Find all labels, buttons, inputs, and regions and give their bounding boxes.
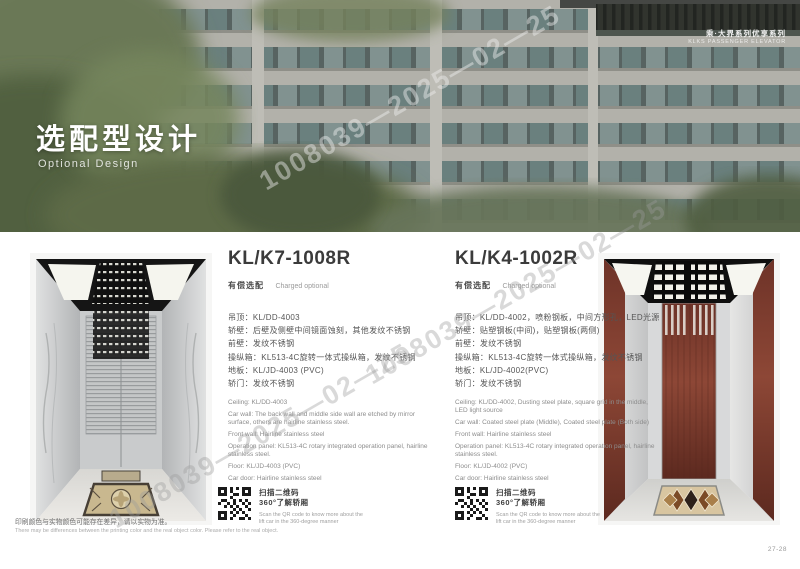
qr-section-k4: 扫描二维码 360°了解轿厢 Scan the QR code to know …	[455, 487, 604, 526]
specs-en: Ceiling: KL/DD-4003 Car wall: The back w…	[228, 399, 436, 483]
qr-caption-zh-2: 360°了解轿厢	[259, 498, 367, 508]
qr-caption: 扫描二维码 360°了解轿厢 Scan the QR code to know …	[496, 488, 604, 526]
spec-line: 前壁：发纹不锈钢	[228, 337, 436, 350]
charge-tag-en: Charged optional	[275, 283, 328, 290]
spec-line: 轿壁：后壁及侧壁中间镜面蚀刻，其他发纹不锈钢	[228, 324, 436, 337]
spec-line-en: Car door: Hairline stainless steel	[455, 475, 659, 483]
charge-tag: 有偿选配 Charged optional	[455, 275, 663, 293]
disclaimer-en: There may be differences between the pri…	[15, 528, 278, 535]
color-disclaimer: 印刷颜色与实物颜色可能存在差异，请以实物为准。 There may be dif…	[15, 519, 278, 535]
product-block-k7: KL/K7-1008R 有偿选配 Charged optional 吊顶：KL/…	[228, 248, 436, 486]
spec-line-en: Car wall: Coated steel plate (Middle), C…	[455, 419, 659, 427]
model-title: KL/K7-1008R	[228, 248, 436, 270]
series-caption-en: KLKS PASSENGER ELEVATOR	[688, 38, 786, 47]
spec-line: 地板：KL/JD-4002(PVC)	[455, 364, 663, 377]
series-caption-zh: 乘·大界系列优享系列	[688, 29, 786, 38]
spec-line: 轿门：发纹不锈钢	[455, 377, 663, 390]
qr-caption-zh-2: 360°了解轿厢	[496, 498, 604, 508]
product-block-k4: KL/K4-1002R 有偿选配 Charged optional 吊顶：KL/…	[455, 248, 663, 486]
specs-zh: 吊顶：KL/DD-4002，喷粉钢板，中间方形孔，LED光源 轿壁：贴塑钢板(中…	[455, 311, 663, 390]
spec-line: 地板：KL/JD-4003 (PVC)	[228, 364, 436, 377]
charge-tag-zh: 有偿选配	[228, 281, 264, 290]
spec-line: 轿壁：贴塑钢板(中间)，贴塑钢板(两侧)	[455, 324, 663, 337]
page-number: 27-28	[768, 546, 787, 553]
spec-line-en: Car wall: The back wall and middle side …	[228, 411, 432, 427]
qr-caption-zh-1: 扫描二维码	[259, 488, 367, 498]
series-caption: 乘·大界系列优享系列 KLKS PASSENGER ELEVATOR	[688, 29, 786, 47]
charge-tag-en: Charged optional	[502, 283, 555, 290]
spec-line-en: Ceiling: KL/DD-4003	[228, 399, 432, 407]
spec-line: 吊顶：KL/DD-4002，喷粉钢板，中间方形孔，LED光源	[455, 311, 663, 324]
qr-code-icon	[218, 487, 251, 520]
elevator-render-k7	[30, 253, 212, 525]
hero-photo: 选配型设计 Optional Design 乘·大界系列优享系列 KLKS PA…	[0, 0, 800, 232]
page-subtitle: Optional Design	[38, 158, 139, 170]
spec-line: 操纵箱：KL513-4C旋转一体式操纵箱，发纹不锈钢	[228, 351, 436, 364]
qr-code-icon	[455, 487, 488, 520]
spec-line-en: Operation panel: KL513-4C rotary integra…	[455, 443, 659, 459]
spec-line-en: Front wall: Hairline stainless steel	[455, 431, 659, 439]
qr-caption-zh-1: 扫描二维码	[496, 488, 604, 498]
spec-line-en: Floor: KL/JD-4002 (PVC)	[455, 463, 659, 471]
spec-line: 吊顶：KL/DD-4003	[228, 311, 436, 324]
spec-line-en: Floor: KL/JD-4003 (PVC)	[228, 463, 432, 471]
spec-line-en: Ceiling: KL/DD-4002, Dusting steel plate…	[455, 399, 659, 415]
specs-en: Ceiling: KL/DD-4002, Dusting steel plate…	[455, 399, 663, 483]
spec-line-en: Car door: Hairline stainless steel	[228, 475, 432, 483]
specs-zh: 吊顶：KL/DD-4003 轿壁：后壁及侧壁中间镜面蚀刻，其他发纹不锈钢 前壁：…	[228, 311, 436, 390]
charge-tag: 有偿选配 Charged optional	[228, 275, 436, 293]
catalog-page: { "page": { "watermark": "1008039—2025—0…	[0, 0, 800, 569]
disclaimer-zh: 印刷颜色与实物颜色可能存在差异，请以实物为准。	[15, 519, 278, 528]
spec-line: 前壁：发纹不锈钢	[455, 337, 663, 350]
spec-line-en: Operation panel: KL513-4C rotary integra…	[228, 443, 432, 459]
charge-tag-zh: 有偿选配	[455, 281, 491, 290]
spec-line: 操纵箱：KL513-4C旋转一体式操纵箱，发纹不锈钢	[455, 351, 663, 364]
qr-caption-en: Scan the QR code to know more about the …	[496, 512, 604, 526]
page-title: 选配型设计	[36, 116, 201, 158]
spec-line: 轿门：发纹不锈钢	[228, 377, 436, 390]
model-title: KL/K4-1002R	[455, 248, 663, 270]
spec-line-en: Front wall: Hairline stainless steel	[228, 431, 432, 439]
